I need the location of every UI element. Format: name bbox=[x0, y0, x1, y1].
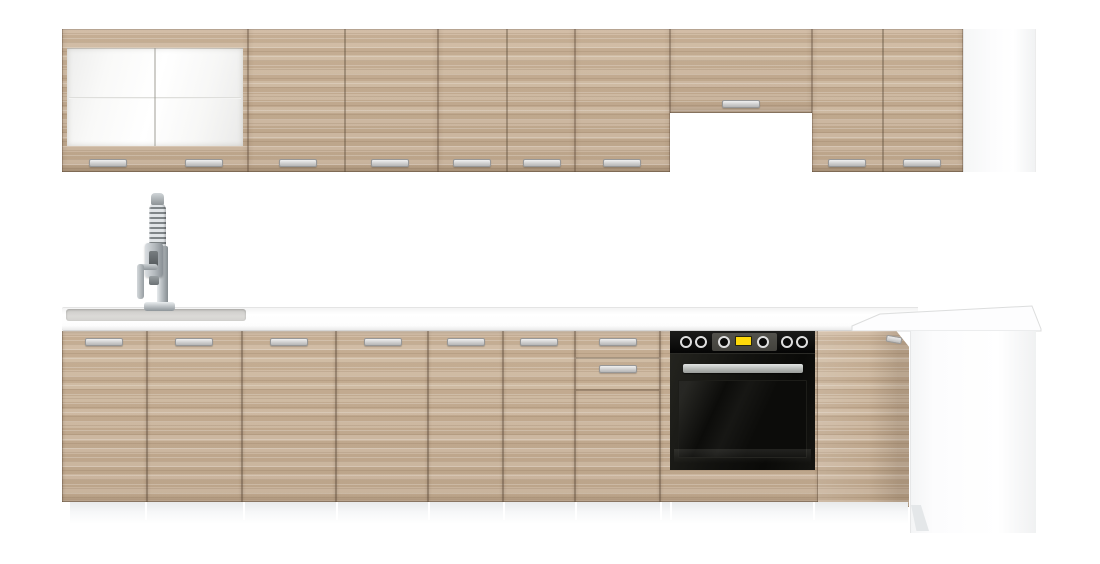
base-cabinet-door bbox=[62, 331, 147, 502]
oven-knob bbox=[781, 336, 793, 348]
oven-knob bbox=[796, 336, 808, 348]
corner-base-cabinet bbox=[818, 331, 909, 507]
oven-knob bbox=[695, 336, 707, 348]
drawer-divider-icon bbox=[576, 357, 659, 359]
faucet-lever bbox=[137, 264, 144, 299]
glass-door-gap bbox=[154, 48, 156, 146]
base-cabinet-door bbox=[147, 331, 242, 502]
cabinet-handle bbox=[85, 338, 123, 346]
wall-cabinet-glass bbox=[62, 29, 248, 172]
plinth-gap bbox=[428, 502, 430, 520]
faucet-base bbox=[144, 302, 175, 311]
plinth-gap bbox=[503, 502, 505, 520]
wall-end-panel bbox=[963, 29, 1036, 172]
cabinet-handle bbox=[599, 338, 637, 346]
oven bbox=[670, 331, 815, 470]
cabinet-handle bbox=[175, 338, 213, 346]
faucet-nozzle bbox=[149, 276, 159, 285]
cabinet-handle bbox=[523, 159, 561, 167]
plinth-gap bbox=[336, 502, 338, 520]
base-cabinet-door bbox=[242, 331, 336, 502]
base-drawer-unit bbox=[575, 331, 660, 502]
cabinet-handle bbox=[603, 159, 641, 167]
wall-cabinet-2door bbox=[438, 29, 575, 172]
cabinet-handle bbox=[453, 159, 491, 167]
cabinet-handle bbox=[599, 365, 637, 373]
base-cabinet-door bbox=[336, 331, 428, 502]
cabinet-handle bbox=[828, 159, 866, 167]
faucet-top-cap bbox=[151, 193, 164, 205]
oven-knob bbox=[757, 336, 769, 348]
oven-knob bbox=[718, 336, 730, 348]
door-divider-icon bbox=[344, 29, 346, 172]
cabinet-handle bbox=[279, 159, 317, 167]
oven-door bbox=[670, 353, 815, 470]
kitchen-set-render bbox=[0, 0, 1100, 564]
plinth bbox=[70, 502, 908, 524]
base-cabinet-door bbox=[503, 331, 575, 502]
wall-cabinet-2door bbox=[248, 29, 438, 172]
glass-front-panel bbox=[67, 48, 243, 146]
plinth-gap bbox=[575, 502, 577, 520]
door-divider-icon bbox=[882, 29, 884, 172]
oven-door-glass bbox=[678, 380, 807, 458]
wall-cabinet-hood bbox=[670, 29, 812, 113]
plinth-gap bbox=[670, 502, 672, 520]
oven-display bbox=[735, 336, 752, 346]
cabinet-handle bbox=[903, 159, 941, 167]
oven-handle bbox=[683, 364, 803, 373]
plinth-gap bbox=[243, 502, 245, 520]
cabinet-handle bbox=[520, 338, 558, 346]
cabinet-handle bbox=[185, 159, 223, 167]
end-panel-plinth-edge bbox=[911, 505, 929, 531]
drawer-divider-icon bbox=[576, 389, 659, 391]
cabinet-handle bbox=[447, 338, 485, 346]
plinth-gap bbox=[660, 502, 662, 520]
wall-cabinet-2door bbox=[812, 29, 963, 172]
corner-door-shading bbox=[818, 331, 909, 507]
plinth-gap bbox=[145, 502, 147, 520]
wall-cabinet-1door bbox=[575, 29, 670, 172]
oven-door-sheen bbox=[674, 449, 811, 463]
cabinet-handle bbox=[364, 338, 402, 346]
plinth-gap bbox=[813, 502, 815, 520]
cabinet-handle bbox=[89, 159, 127, 167]
cabinet-handle bbox=[371, 159, 409, 167]
oven-knob bbox=[680, 336, 692, 348]
cabinet-handle bbox=[722, 100, 760, 108]
base-cabinet-door bbox=[428, 331, 503, 502]
door-divider-icon bbox=[506, 29, 508, 172]
base-end-panel bbox=[910, 331, 1036, 533]
cabinet-handle bbox=[270, 338, 308, 346]
